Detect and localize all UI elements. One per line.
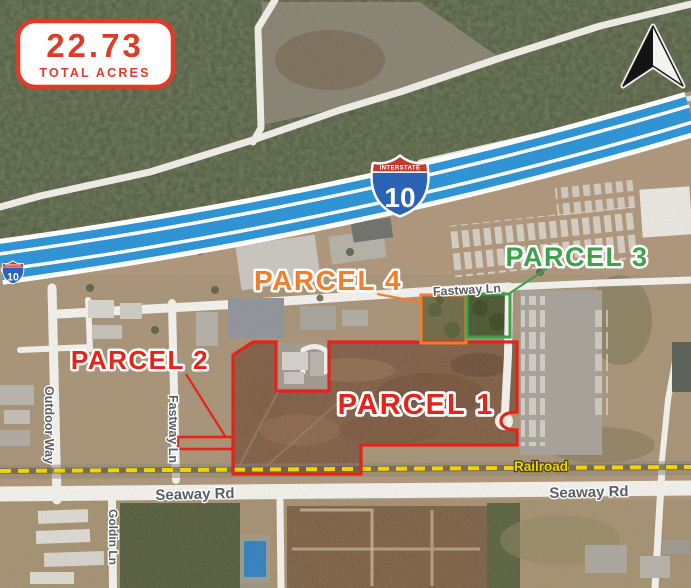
badge-acres-value: 22.73 xyxy=(46,27,144,64)
road-label-goldin-ln: Goldin Ln xyxy=(106,509,120,565)
road-label-seaway-rd-left: Seaway Rd xyxy=(155,485,235,504)
aerial-map: INTERSTATE 10 xyxy=(0,0,691,588)
railroad-label: Railroad xyxy=(514,459,568,474)
road-label-outdoor-way: Outdoor Way xyxy=(42,386,56,464)
parcel-1-label: PARCEL 1 xyxy=(338,389,495,421)
road-label-seaway-rd-right: Seaway Rd xyxy=(549,483,629,502)
badge-acres-caption: TOTAL ACRES xyxy=(39,66,150,80)
parcel-3-label: PARCEL 3 xyxy=(505,242,648,272)
parcel-2-label: PARCEL 2 xyxy=(71,345,209,375)
railroad-line xyxy=(0,467,691,472)
road-label-fastway-ln-v: Fastway Ln xyxy=(166,395,180,463)
parcel-4-label: PARCEL 4 xyxy=(254,265,402,296)
acreage-badge: 22.73 TOTAL ACRES xyxy=(18,21,173,87)
